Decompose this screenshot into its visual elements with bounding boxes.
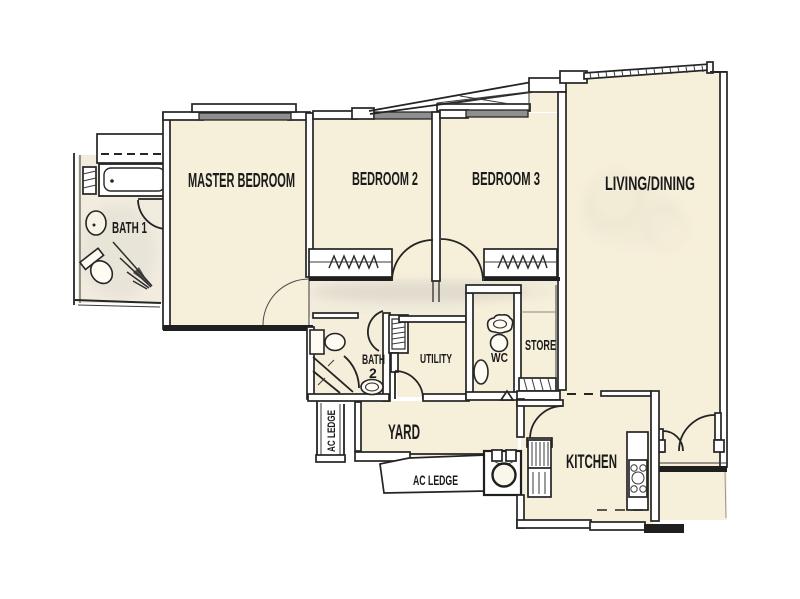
svg-text:BEDROOM 2: BEDROOM 2: [352, 169, 418, 189]
svg-text:UTILITY: UTILITY: [420, 351, 452, 366]
svg-text:BEDROOM 3: BEDROOM 3: [472, 169, 540, 189]
svg-text:AC LEDGE: AC LEDGE: [326, 410, 338, 452]
svg-text:AC LEDGE: AC LEDGE: [413, 472, 458, 488]
svg-text:BATH 1: BATH 1: [112, 220, 147, 237]
svg-text:KITCHEN: KITCHEN: [566, 452, 617, 473]
svg-text:LIVING/DINING: LIVING/DINING: [605, 174, 695, 195]
svg-text:2: 2: [369, 365, 377, 381]
svg-text:STORE: STORE: [525, 337, 556, 354]
svg-text:YARD: YARD: [388, 421, 420, 444]
svg-text:MASTER BEDROOM: MASTER BEDROOM: [188, 170, 295, 192]
svg-text:WC: WC: [491, 350, 508, 365]
